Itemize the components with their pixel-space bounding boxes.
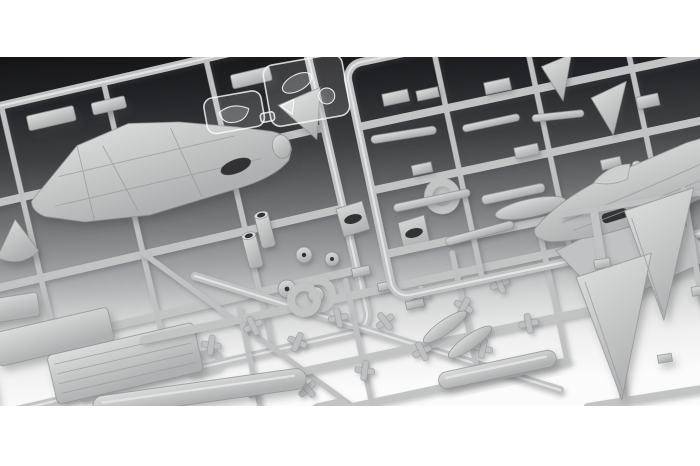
letterbox-bottom [0,406,700,466]
photo-area [0,57,700,406]
sprue-scene [0,57,700,406]
letterbox-top [0,0,700,57]
model-kit-photo [0,0,700,466]
